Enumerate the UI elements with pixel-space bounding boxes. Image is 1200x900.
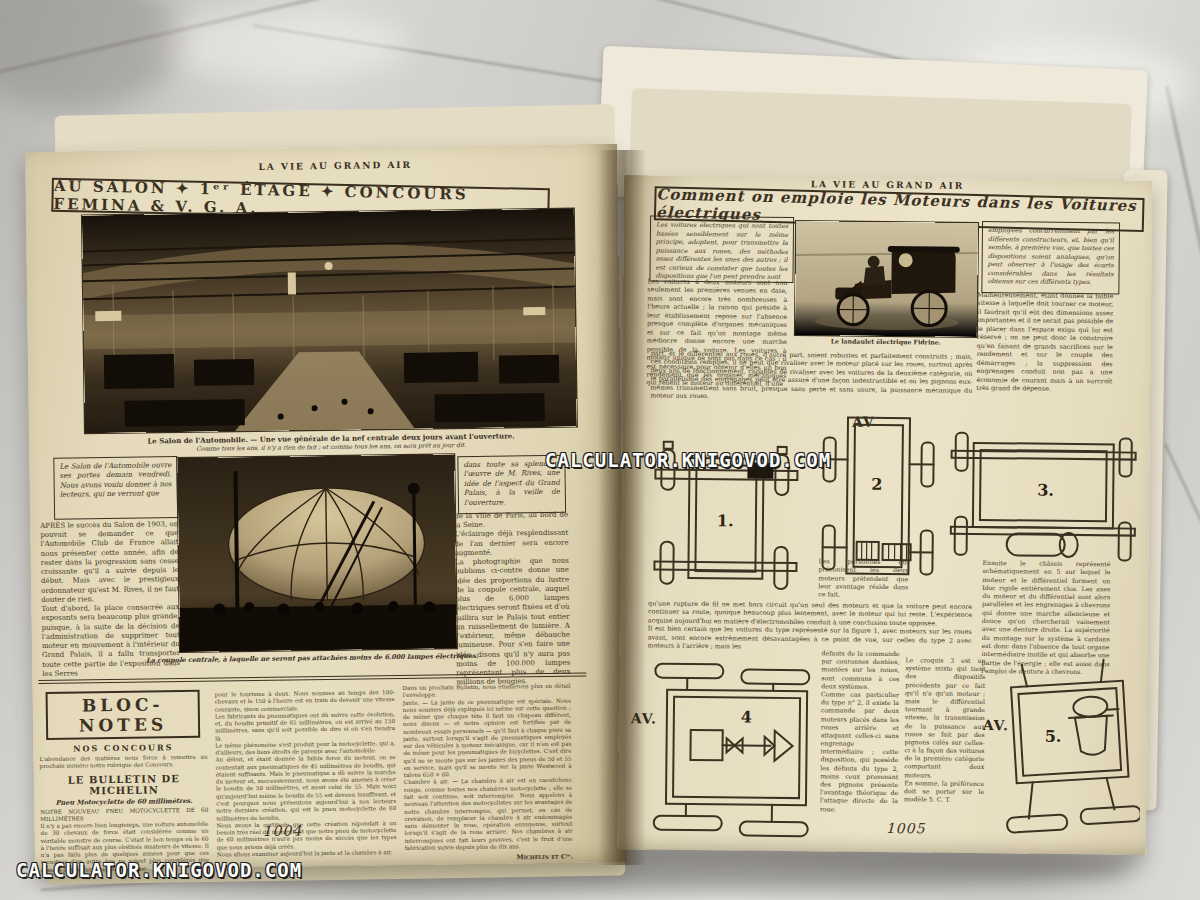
bulletin-col3: Dans un prochain Bulletin, nous étudiero… — [402, 683, 572, 863]
concours-text: L'abondance des matières nous force à re… — [39, 754, 207, 771]
right-page-number: 1005 — [886, 820, 926, 836]
watermark-center: CALCULATOR.KNIGOVOD.COM — [545, 449, 831, 471]
salon-photo-caption: Le Salon de l'Automobile. — Une vue géné… — [75, 430, 587, 454]
figure-2-label: 2 — [871, 475, 882, 494]
center-fold-shadow — [598, 150, 646, 865]
rupture-paragraph: qu'une rupture de fil ne met hors circui… — [647, 600, 972, 663]
bulletin-col3-text: Dans un prochain Bulletin, nous étudiero… — [402, 683, 572, 852]
marble-highlight — [150, 10, 410, 80]
salon-hall-illustration — [82, 209, 577, 434]
chassis-diagram-4: 4 — [652, 656, 820, 848]
personnes-paragraph: Les personnes qui préconisent les deux m… — [818, 557, 908, 602]
bulletin-michelin-heading: LE BULLETIN DE MICHELIN — [40, 772, 208, 796]
electric-intro-box-right: employées concurremment par les différen… — [981, 221, 1120, 294]
nos-concours-heading: NOS CONCOURS — [39, 742, 207, 754]
left-page-number: 1004 — [262, 822, 302, 839]
landaulet-caption-text: Le landaulet électrique Fidrine. — [831, 337, 941, 345]
bulletin-subtitle: Pneu Motocyclette de 60 millimètres. — [40, 796, 208, 806]
michelin-signature: Michelin et Cⁱᵉ. — [405, 853, 573, 863]
cupola-photo — [177, 454, 457, 652]
figure-3-label: 3. — [1037, 481, 1054, 500]
ensuite-paragraph: Ensuite le châssis représenté schématiqu… — [981, 559, 1110, 668]
malheureusement-paragraph: Malheureusement, étant donnée la faible … — [976, 291, 1113, 412]
landaulet-photo — [795, 221, 978, 337]
apres-paragraph: APRÈS le succès du Salon de 1903, on pou… — [40, 520, 180, 692]
right-page: LA VIE AU GRAND AIR Comment on emploie l… — [617, 175, 1152, 854]
cupola-illustration — [177, 454, 457, 652]
marble-vein — [1164, 443, 1200, 680]
bloc-notes-title-box: BLOC-NOTES — [46, 690, 201, 740]
chassis-diagram-5: 5. — [999, 655, 1141, 852]
bulletin-col2-text: pour le tourisme à deux. Nous sommes au … — [215, 689, 397, 829]
figure-5-label: 5. — [1045, 727, 1062, 746]
figure-4-label: 4 — [741, 708, 752, 727]
marble-vein — [1165, 85, 1200, 399]
electric-intro-box-left: Les voitures électriques qui sont toutes… — [649, 216, 794, 284]
marble-shade — [0, 0, 180, 110]
differentiel-paragraph: part, et le différentiel aux roues, d'au… — [650, 350, 973, 417]
cupola-caption: La coupole centrale, à laquelle ne seron… — [132, 652, 492, 665]
bloc-notes-column: BLOC-NOTES NOS CONCOURS L'abondance des … — [39, 690, 210, 874]
left-page: LA VIE AU GRAND AIR AU SALON ✦ 1ᵉʳ ÉTAGE… — [25, 144, 627, 870]
salon-hall-photo — [82, 209, 577, 434]
landaulet-caption: Le landaulet électrique Fidrine. — [795, 337, 977, 347]
left-intro-text: Le Salon de l'Automobile ouvre ses porte… — [59, 461, 171, 499]
left-intro-box: Le Salon de l'Automobile ouvre ses porte… — [53, 456, 178, 520]
mixte-column: Le croquis 3 est un système mixte qui ti… — [904, 656, 986, 847]
watermark-bottom-left: CALCULATOR.KNIGOVOD.COM — [16, 859, 302, 881]
figure-1-label: 1. — [717, 511, 734, 530]
electric-intro-right-text: employées concurremment par les différen… — [987, 226, 1114, 285]
defauts-column: défauts de la commande par couronnes den… — [820, 649, 900, 846]
electric-intro-left-text: Les voitures électriques qui sont toutes… — [655, 221, 788, 280]
bloc-notes-title: BLOC-NOTES — [79, 694, 168, 735]
left-masthead: LA VIE AU GRAND AIR — [250, 160, 420, 172]
cupola-caption-text: La coupole centrale, à laquelle ne seron… — [146, 652, 478, 665]
chassis-diagram-3: 3. — [946, 427, 1140, 579]
landaulet-illustration — [795, 221, 978, 337]
